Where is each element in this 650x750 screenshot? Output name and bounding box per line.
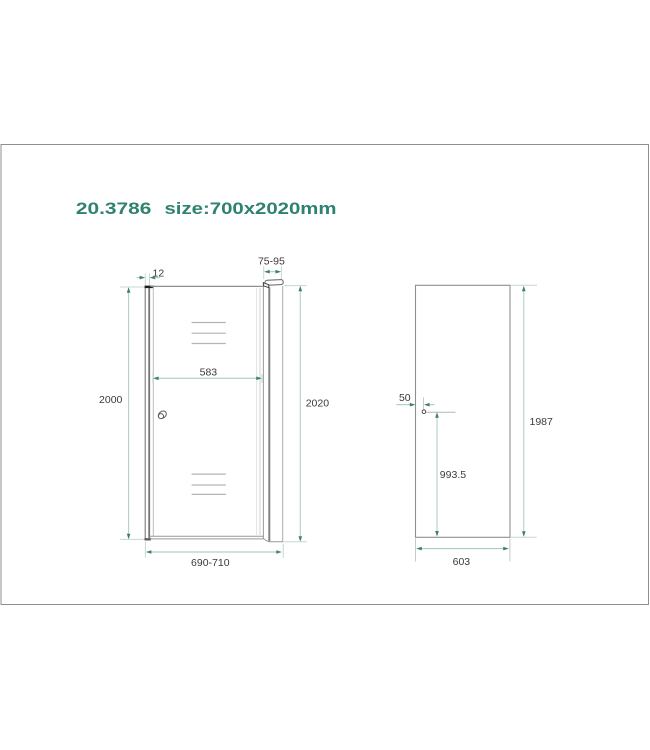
- svg-text:603: 603: [453, 556, 471, 568]
- svg-text:690-710: 690-710: [191, 557, 230, 569]
- svg-text:2000: 2000: [99, 394, 123, 406]
- svg-text:75-95: 75-95: [258, 256, 285, 268]
- svg-text:583: 583: [200, 366, 218, 378]
- svg-text:993.5: 993.5: [440, 469, 466, 481]
- svg-text:2020: 2020: [306, 398, 330, 410]
- svg-text:size:700x2020mm: size:700x2020mm: [164, 199, 336, 218]
- svg-text:1987: 1987: [530, 416, 554, 428]
- svg-text:20.3786: 20.3786: [76, 199, 151, 217]
- svg-text:50: 50: [399, 392, 411, 404]
